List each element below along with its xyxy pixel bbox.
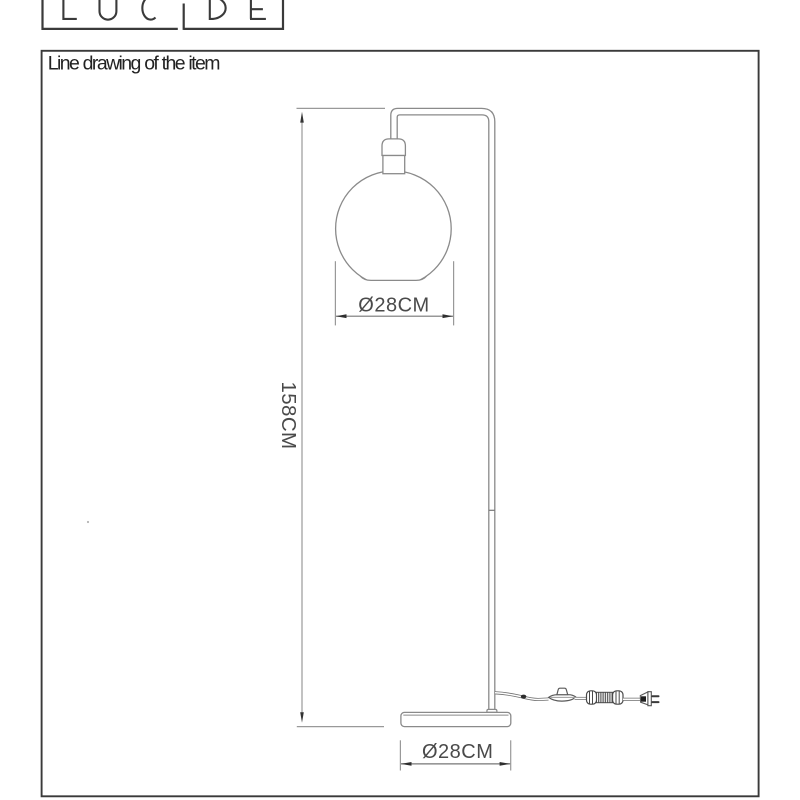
svg-text:158CM: 158CM (277, 381, 300, 449)
svg-text:Ø28CM: Ø28CM (358, 295, 429, 317)
svg-text:Line drawing of the item: Line drawing of the item (48, 52, 219, 74)
svg-text:Ø28CM: Ø28CM (422, 741, 493, 763)
